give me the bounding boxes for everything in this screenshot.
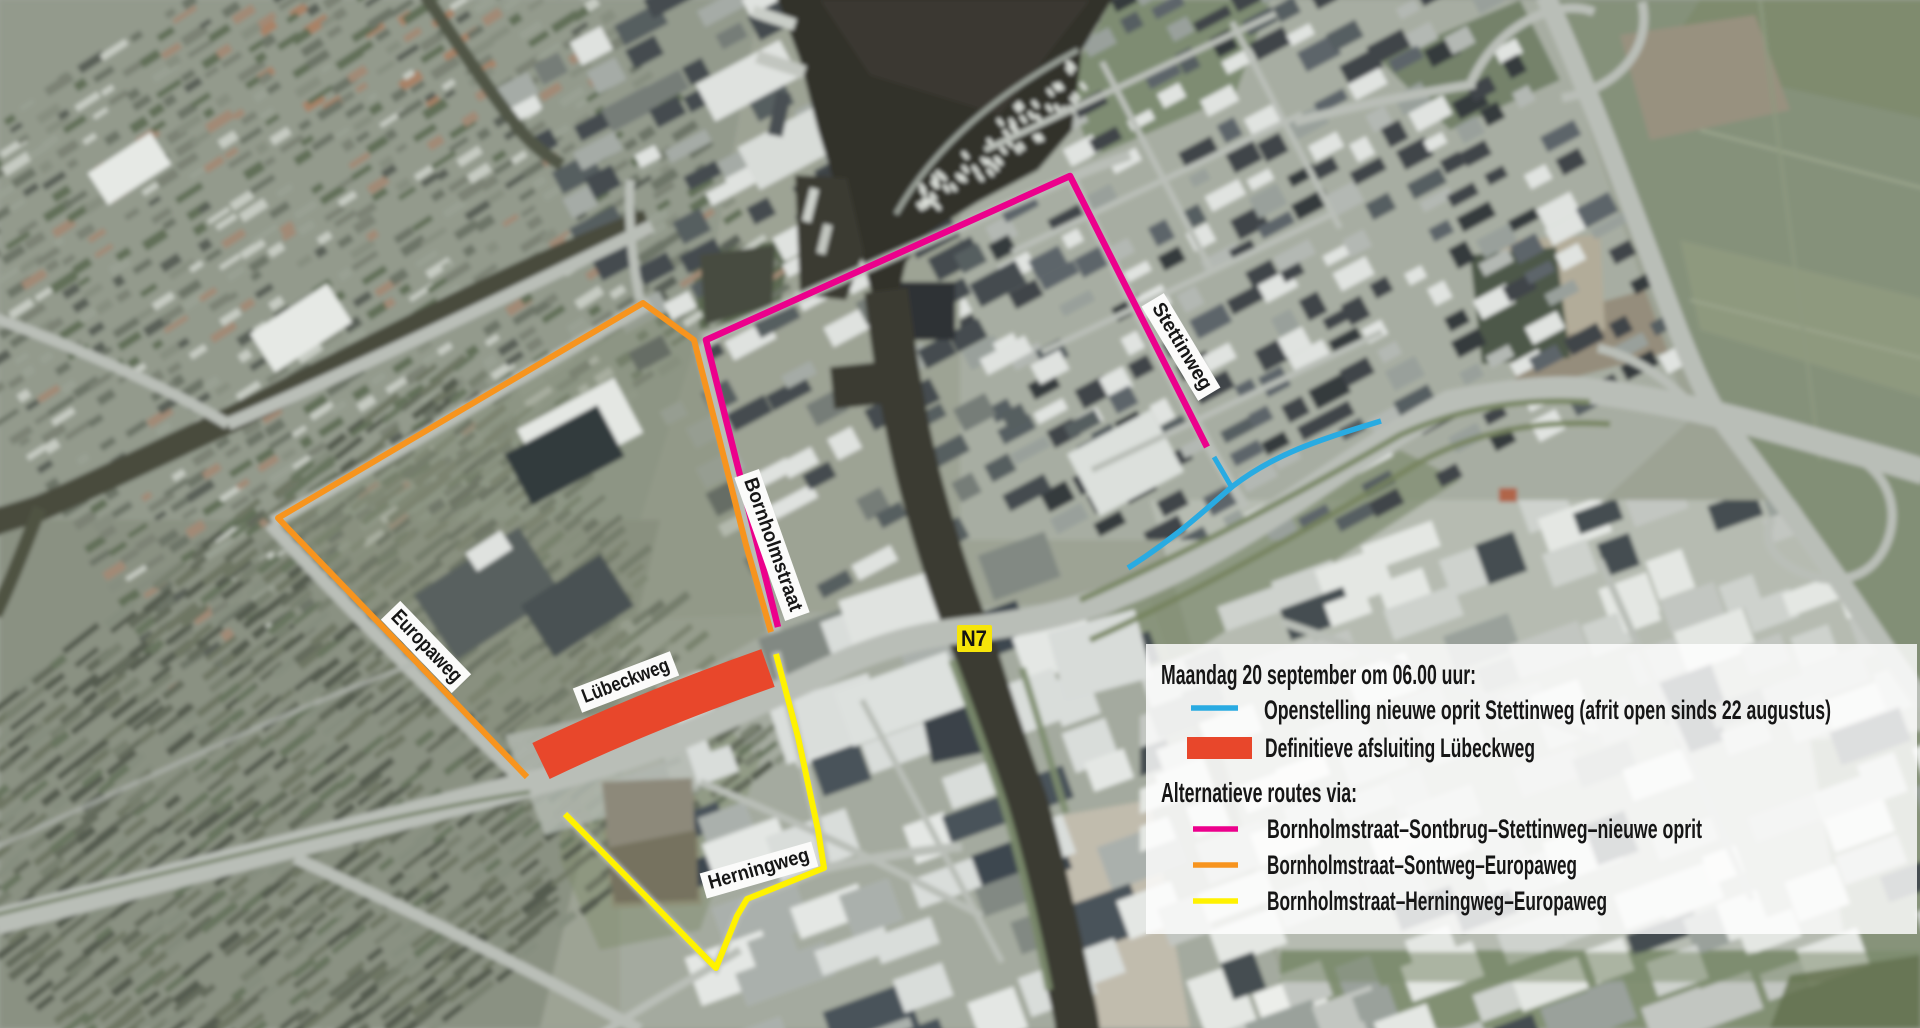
svg-text:Definitieve afsluiting Lübeckw: Definitieve afsluiting Lübeckweg (1265, 733, 1535, 763)
svg-text:Openstelling nieuwe oprit Stet: Openstelling nieuwe oprit Stettinweg (af… (1264, 695, 1831, 725)
svg-text:Bornholmstraat–Herningweg–Euro: Bornholmstraat–Herningweg–Europaweg (1267, 886, 1607, 916)
svg-text:N7: N7 (961, 626, 987, 651)
svg-text:Alternatieve routes via:: Alternatieve routes via: (1161, 777, 1357, 808)
svg-text:Bornholmstraat–Sontbrug–Stetti: Bornholmstraat–Sontbrug–Stettinweg–nieuw… (1267, 814, 1702, 844)
svg-text:Maandag 20 september om 06.00: Maandag 20 september om 06.00 uur: (1161, 659, 1476, 690)
svg-text:Bornholmstraat–Sontweg–Europaw: Bornholmstraat–Sontweg–Europaweg (1267, 850, 1577, 880)
